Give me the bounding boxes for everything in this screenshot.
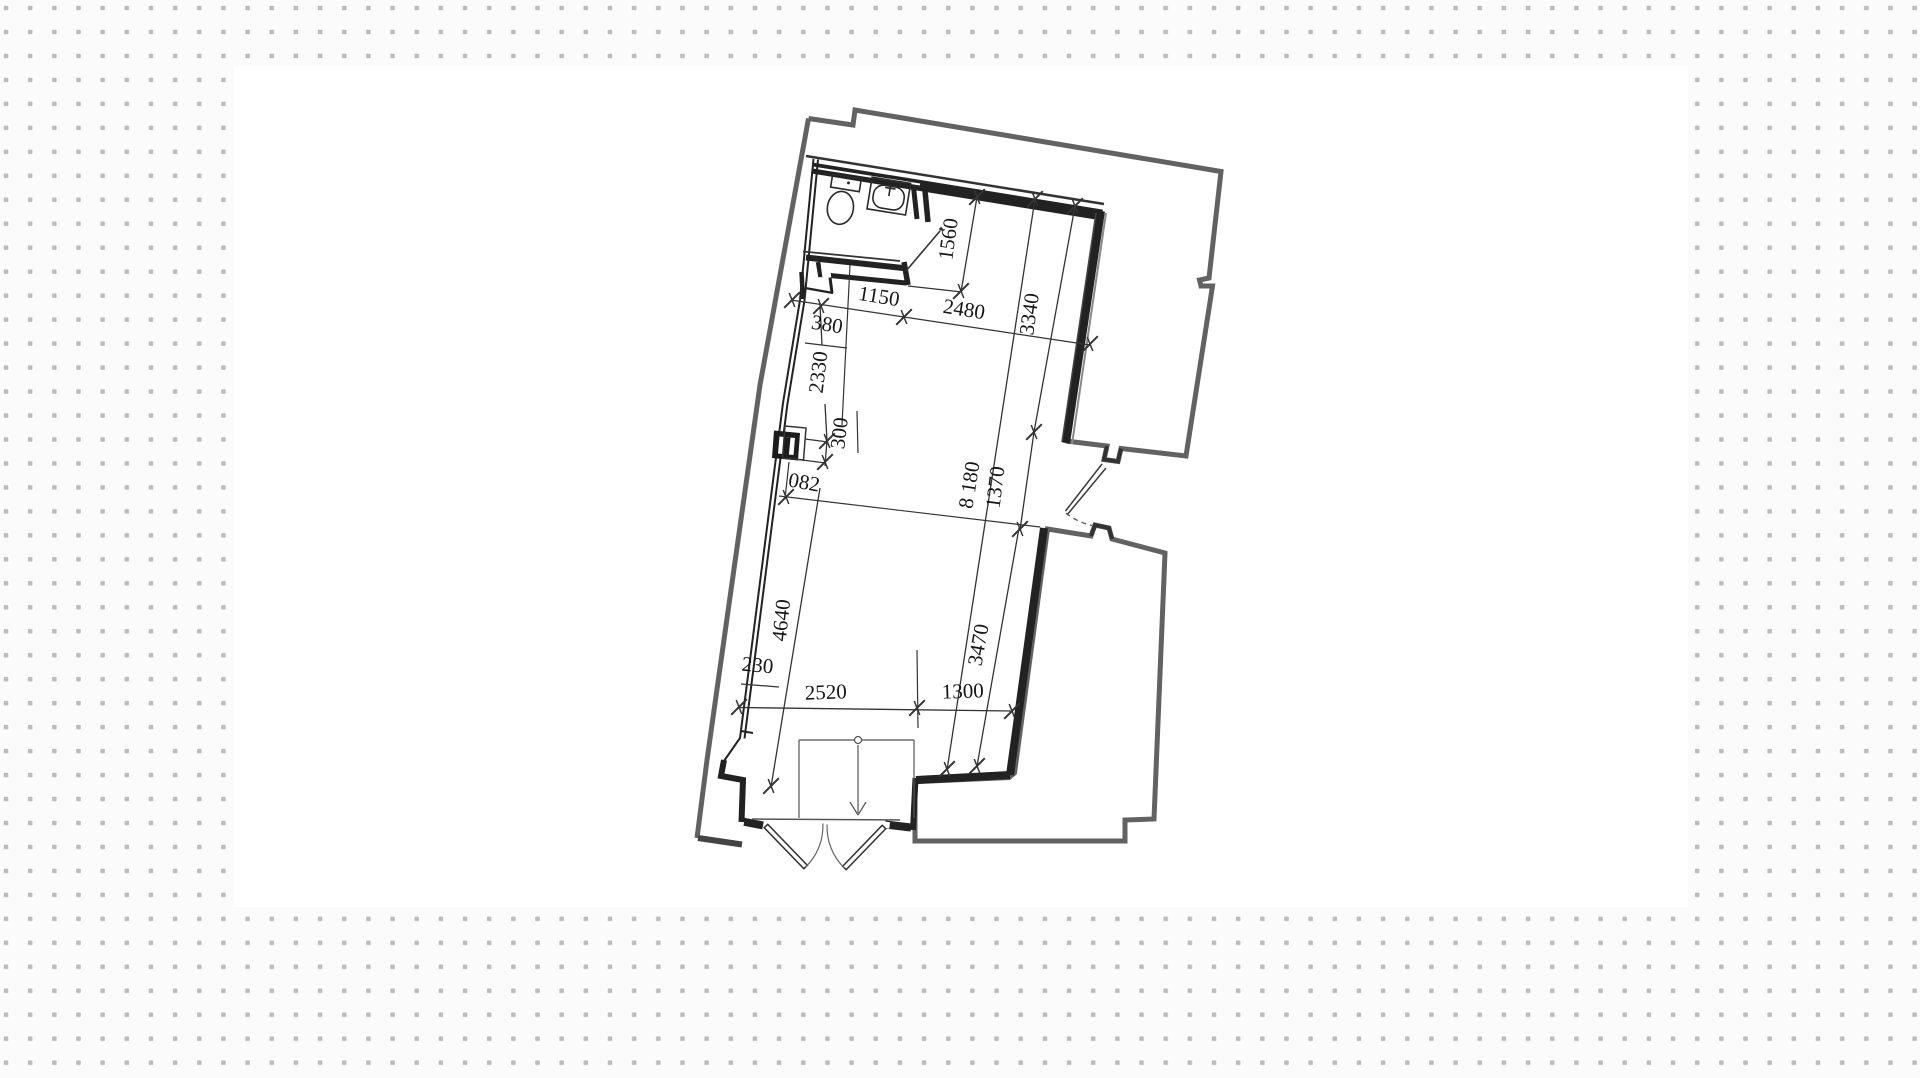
svg-text:230: 230 [741,652,774,679]
svg-text:1300: 1300 [941,678,984,703]
svg-text:4640: 4640 [767,598,795,642]
svg-text:380: 380 [810,310,845,339]
svg-text:2520: 2520 [804,679,847,704]
svg-text:2330: 2330 [804,350,833,395]
svg-text:1370: 1370 [981,465,1010,510]
svg-text:300: 300 [825,416,853,450]
